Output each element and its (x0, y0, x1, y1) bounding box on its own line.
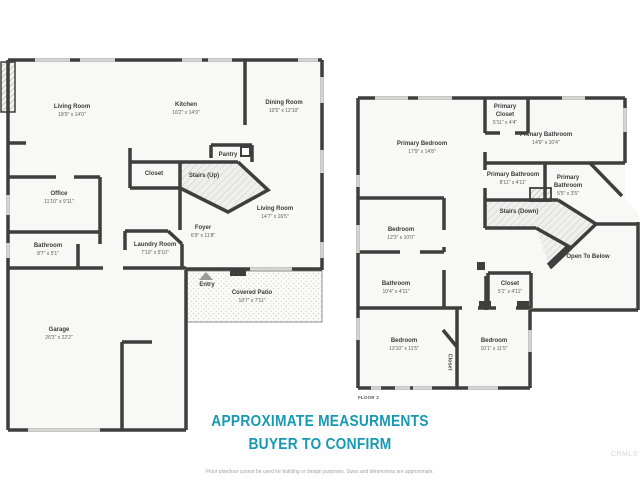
room-label-bathroom-1: Bathroom 8'7" x 5'1" (34, 243, 62, 257)
room-label-foyer: Foyer 6'9" x 11'8" (191, 225, 215, 239)
room-label-laundry: Laundry Room 7'10" x 5'10" (134, 242, 176, 256)
watermark: CRMLS (611, 451, 638, 458)
floor-plan-drawing (0, 0, 640, 480)
room-label-primary-bedroom: Primary Bedroom 17'9" x 14'8" (397, 141, 447, 155)
room-label-pantry: Pantry (219, 152, 238, 160)
pantry-post (241, 147, 250, 156)
room-label-bedroom-2: Bedroom 13'10" x 11'5" (389, 338, 419, 352)
floor2-tag: FLOOR 2 (358, 395, 379, 400)
room-label-bathroom-2: Bathroom 10'4" x 4'11" (382, 281, 410, 295)
room-label-dining-room: Dining Room 10'5" x 12'10" (265, 100, 302, 114)
room-label-primary-bathroom-2: Primary Bathroom 8'11" x 4'11" (487, 172, 539, 186)
room-label-closet-2: Closet 5'1" x 4'11" (498, 281, 522, 295)
room-label-closet-3: Closet (445, 354, 452, 371)
room-label-primary-bathroom-1: Primary Bathroom 14'9" x 10'4" (520, 132, 572, 146)
door-block (517, 301, 529, 308)
door-block (479, 301, 491, 308)
title-line-2: BUYER TO CONFIRM (45, 436, 595, 454)
room-label-primary-closet: Primary Closet 5'11" x 4'4" (489, 104, 521, 126)
room-label-bedroom-3: Bedroom 10'1" x 11'5" (480, 338, 507, 352)
room-label-office: Office 11'10" x 9'11" (44, 191, 73, 205)
room-label-living-room-2: Living Room 14'7" x 16'5" (257, 206, 293, 220)
disclaimer-text: Floor plan/tour cannot be used for build… (0, 469, 640, 475)
room-label-stairs-up: Stairs (Up) (189, 173, 219, 181)
room-label-closet-1: Closet (145, 171, 163, 179)
room-label-stairs-down: Stairs (Down) (500, 209, 539, 217)
room-label-living-room-1: Living Room 18'9" x 14'0" (54, 104, 90, 118)
room-label-garage: Garage 26'3" x 22'2" (45, 327, 72, 341)
room-label-open-to-below: Open To Below (566, 254, 609, 262)
room-label-covered-patio: Covered Patio 19'7" x 7'11" (232, 290, 272, 304)
door-block (477, 262, 485, 270)
floor-plan-page: Living Room 18'9" x 14'0" Kitchen 16'2" … (0, 0, 640, 480)
title-line-1: APPROXIMATE MEASURMENTS (45, 413, 595, 431)
front-door-block (230, 268, 246, 276)
room-label-bedroom-1: Bedroom 12'3" x 10'0" (387, 227, 414, 241)
room-label-kitchen: Kitchen 16'2" x 14'9" (172, 102, 199, 116)
room-label-entry: Entry (199, 282, 214, 290)
room-label-primary-bathroom-3: Primary Bathroom 5'5" x 3'5" (550, 175, 586, 197)
